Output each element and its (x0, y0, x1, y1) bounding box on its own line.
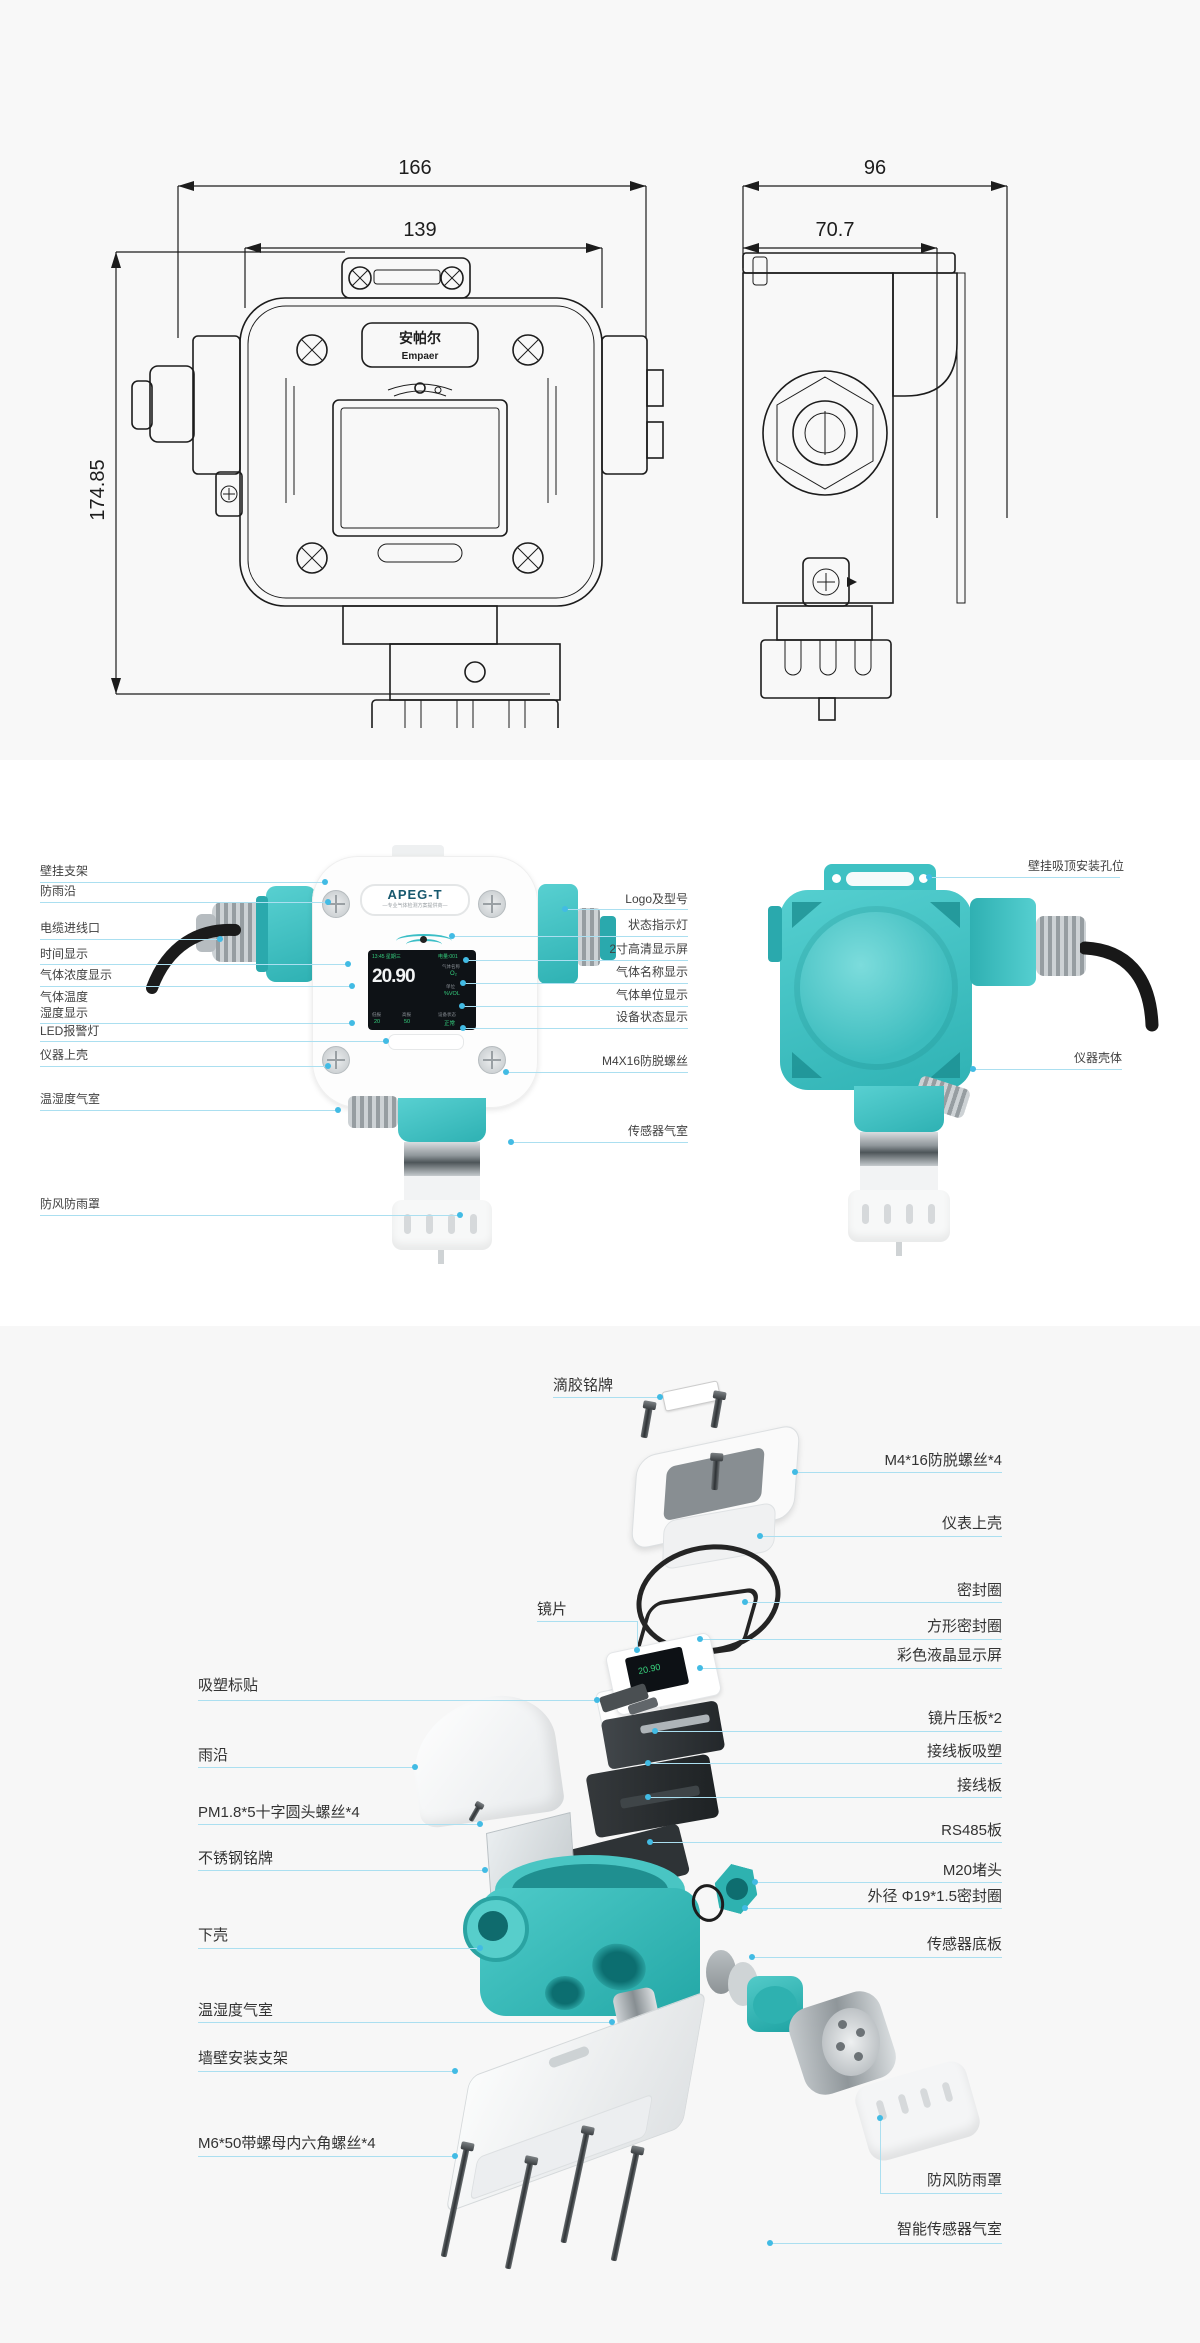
callout-wind-cover-3: 防风防雨罩 (927, 2172, 1002, 2191)
dim-174-85: 174.85 (90, 459, 109, 520)
rear-circle (800, 912, 952, 1064)
screen-status: 正常 (444, 1019, 455, 1027)
right-flange (538, 884, 578, 984)
callout-seal-ring: 密封圈 (957, 1582, 1002, 1601)
right-gland-metal (578, 908, 600, 966)
callout-rain-edge: 防雨沿 (40, 884, 76, 899)
callout-terminal-blister: 接线板吸塑 (927, 1743, 1002, 1762)
sensor-white-ring (404, 1176, 480, 1200)
humidity-chamber (348, 1096, 398, 1128)
screen-low: 20 (374, 1019, 380, 1025)
screen-time: 13:45 星期三 (372, 953, 401, 960)
callout-m4x16-screw: M4X16防脱螺丝 (602, 1054, 688, 1069)
callout-square-seal: 方形密封圈 (927, 1618, 1002, 1637)
brand-cn: 安帕尔 (399, 330, 441, 346)
callout-wind-rain-cover: 防风防雨罩 (40, 1197, 100, 1212)
screen-battery: 电量:001 (438, 953, 458, 960)
part-smart-sensor-face (822, 2008, 880, 2076)
callout-d19-seal: 外径 Φ19*1.5密封圈 (867, 1888, 1002, 1907)
page: 166 139 174.85 安帕尔 Empaer (0, 0, 1200, 2343)
callout-sensor-base: 传感器底板 (927, 1936, 1002, 1955)
sensor-chamber-chrome (404, 1142, 480, 1176)
callout-wall-bracket-3: 墙壁安装支架 (198, 2050, 288, 2069)
buzzer-pill (388, 1034, 464, 1050)
dim-139: 139 (403, 219, 436, 241)
callout-m4-screws: M4*16防脱螺丝*4 (884, 1452, 1002, 1471)
callout-device-status-display: 设备状态显示 (616, 1010, 688, 1025)
dim-166: 166 (398, 157, 431, 179)
rear-sensor-white (860, 1166, 938, 1190)
tech-drawing-side-view: 96 70.7 (725, 138, 1025, 728)
callout-cable-entry: 电缆进线口 (40, 921, 100, 936)
callout-sensor-chamber: 传感器气室 (628, 1124, 688, 1139)
rear-sensor-collar (854, 1086, 944, 1132)
callout-epoxy-nameplate: 滴胶铭牌 (553, 1377, 613, 1396)
left-flange (266, 886, 316, 982)
part-m20-hole (726, 1878, 748, 1900)
callout-status-light: 状态指示灯 (628, 918, 688, 933)
callout-gas-name-display: 气体名称显示 (616, 965, 688, 980)
section2-bg (0, 760, 1200, 1326)
callout-led-alarm: LED报警灯 (40, 1024, 99, 1039)
callout-pm-screws: PM1.8*5十字圆头螺丝*4 (198, 1804, 360, 1823)
rear-cable (1080, 930, 1190, 1040)
screen-unit: %VOL (444, 991, 460, 997)
callout-housing: 仪器壳体 (1074, 1051, 1122, 1066)
screen-value: 20.90 (372, 966, 415, 988)
callout-humidity-display: 湿度显示 (40, 1006, 88, 1021)
sensor-collar (398, 1098, 486, 1142)
logo-tagline: —专业气体检测方案提供商— (362, 903, 468, 909)
callout-meter-upper-shell: 仪表上壳 (942, 1515, 1002, 1534)
callout-rain-edge-3: 雨沿 (198, 1747, 228, 1766)
sensor-pin (438, 1250, 444, 1264)
callout-lens: 镜片 (537, 1601, 567, 1620)
dim-70-7: 70.7 (816, 219, 855, 241)
brand-en: Empaer (402, 351, 439, 362)
logo-plate: APEG-T —专业气体检测方案提供商— (360, 884, 470, 916)
status-led (420, 936, 427, 943)
screen-gas: O₂ (450, 971, 457, 977)
callout-m6-screws: M6*50带螺母内六角螺丝*4 (198, 2135, 376, 2154)
screen-unit-label: 单位 (446, 984, 455, 990)
corner-screw (478, 1046, 506, 1074)
callout-time-display: 时间显示 (40, 947, 88, 962)
callout-gas-unit-display: 气体单位显示 (616, 988, 688, 1003)
callout-logo-model: Logo及型号 (625, 892, 688, 907)
screen-high-label: 高报 (402, 1012, 411, 1018)
callout-mount-holes: 壁挂吸顶安装孔位 (1028, 859, 1124, 874)
dim-96: 96 (864, 157, 886, 179)
callout-gas-temp: 气体温度 (40, 990, 88, 1005)
part-shell-front-port-2 (545, 1976, 585, 2010)
rear-sensor-pin (896, 1242, 902, 1256)
screen-low-label: 低报 (372, 1012, 381, 1018)
screen-gas-label: 气体名称 (442, 964, 460, 970)
front-cable (120, 900, 260, 1010)
corner-screw (322, 1046, 350, 1074)
part-shell-left-hole (478, 1911, 508, 1941)
callout-lcd: 彩色液晶显示屏 (897, 1647, 1002, 1666)
callout-wall-bracket: 壁挂支架 (40, 864, 88, 879)
screen-status-label: 设备状态 (438, 1012, 456, 1018)
callout-hd-screen: 2寸高清显示屏 (609, 942, 688, 957)
callout-th-chamber: 温湿度气室 (40, 1092, 100, 1107)
rear-sensor-chrome (860, 1132, 938, 1166)
callout-terminal-board: 接线板 (957, 1777, 1002, 1796)
device-screen (368, 950, 476, 1030)
callout-m20-plug: M20堵头 (943, 1862, 1002, 1881)
callout-steel-nameplate: 不锈钢铭牌 (198, 1850, 273, 1869)
screen-high: 50 (404, 1019, 410, 1025)
corner-screw (478, 890, 506, 918)
callout-lens-plates: 镜片压板*2 (928, 1710, 1002, 1729)
callout-rs485: RS485板 (941, 1822, 1002, 1841)
rear-left-stub (768, 906, 782, 962)
callout-upper-shell: 仪器上壳 (40, 1048, 88, 1063)
tech-drawing-front-view: 166 139 174.85 安帕尔 Empaer (90, 138, 670, 728)
callout-th-chamber-3: 温湿度气室 (198, 2002, 273, 2021)
logo-text: APEG-T (362, 886, 468, 903)
rear-gland-metal (1036, 916, 1086, 976)
callout-blister-sticker: 吸塑标贴 (198, 1677, 258, 1696)
callout-concentration-display: 气体浓度显示 (40, 968, 112, 983)
callout-smart-sensor: 智能传感器气室 (897, 2221, 1002, 2240)
mount-hole (832, 874, 841, 883)
rear-tab-slot (846, 872, 914, 886)
rear-arm-teal (970, 898, 1036, 986)
callout-lower-shell: 下壳 (198, 1927, 228, 1946)
